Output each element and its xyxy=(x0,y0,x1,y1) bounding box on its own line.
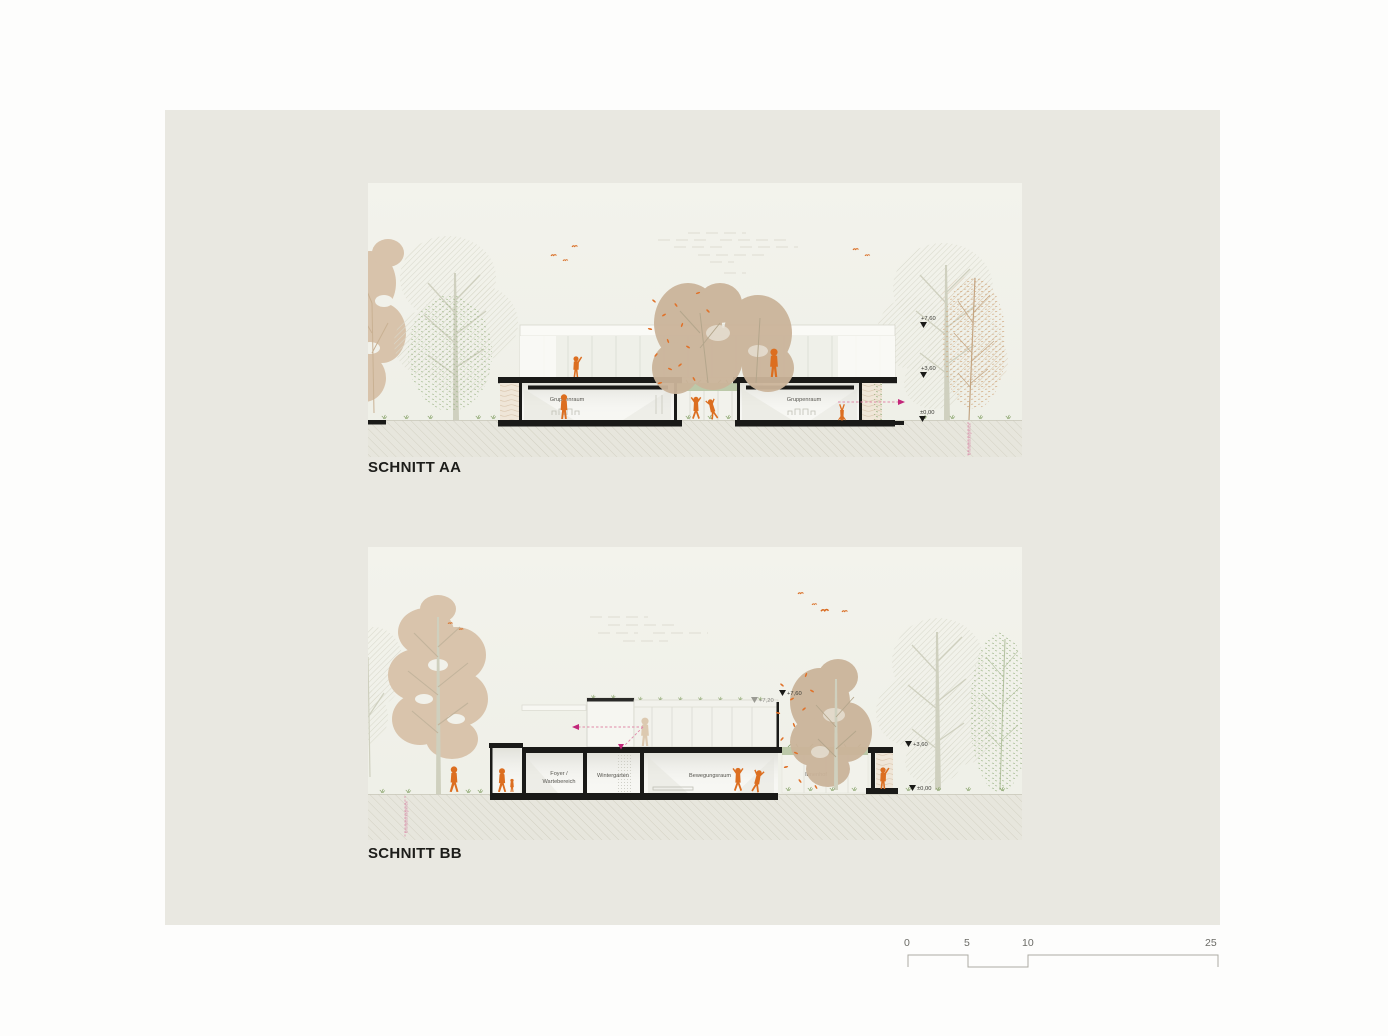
property-line-aa: Grundstücksgrenze xyxy=(968,422,972,456)
svg-text:+7,60: +7,60 xyxy=(921,316,936,322)
building-aa-left-wing: Gruppenraum xyxy=(498,377,682,420)
room-label-foyer-line2: Wartebereich xyxy=(542,779,575,785)
svg-text:±0,00: ±0,00 xyxy=(917,786,931,792)
room-label-foyer-line1: Foyer / xyxy=(550,771,568,777)
ground-aa xyxy=(368,415,1022,457)
section-bb-drawing: Foyer / Wartebereich Wintergarten Bewegu… xyxy=(368,547,1022,840)
svg-text:+3,60: +3,60 xyxy=(921,366,936,372)
scale-label-5: 5 xyxy=(964,937,970,949)
scale-label-10: 10 xyxy=(1022,937,1034,949)
room-label-gruppenraum-left: Gruppenraum xyxy=(550,397,585,403)
svg-text:+7,20: +7,20 xyxy=(759,698,774,704)
svg-text:+7,60: +7,60 xyxy=(787,691,802,697)
floor-slab-right xyxy=(735,420,895,427)
stair-tower xyxy=(587,698,634,747)
svg-text:Grundstücksgrenze: Grundstücksgrenze xyxy=(968,423,972,455)
svg-text:+3,60: +3,60 xyxy=(913,742,928,748)
tree-aa-centre xyxy=(648,283,794,394)
court-glazing-aa xyxy=(680,391,736,420)
section-bb-title: SCHNITT BB xyxy=(368,845,462,862)
scale-bar-line xyxy=(908,955,1218,967)
annex-left xyxy=(489,743,523,793)
floor-slab-main xyxy=(490,793,778,800)
scale-bar: 0 5 10 25 xyxy=(895,926,1230,974)
room-label-gruppenraum-right: Gruppenraum xyxy=(787,397,822,403)
section-aa-drawing: Gruppenraum Gruppenraum xyxy=(368,183,1022,457)
ground-bb xyxy=(368,787,1022,840)
svg-text:±0,00: ±0,00 xyxy=(920,410,934,416)
room-label-wintergarten: Wintergarten xyxy=(597,773,629,779)
scale-label-25: 25 xyxy=(1205,937,1217,949)
property-line-bb: Grundstücksgrenze xyxy=(405,796,409,838)
upper-floor xyxy=(634,700,779,747)
section-aa-title: SCHNITT AA xyxy=(368,459,461,476)
floor-slab-left xyxy=(498,420,682,427)
scale-label-0: 0 xyxy=(904,937,910,949)
floor-slab-mid xyxy=(522,747,782,753)
climbing-plants xyxy=(874,383,882,420)
room-label-bewegungsraum: Bewegungsraum xyxy=(689,773,731,779)
tree-aa-left-green-speckle xyxy=(408,295,492,411)
sheet: Gruppenraum Gruppenraum xyxy=(0,0,1388,1036)
svg-text:Grundstücksgrenze: Grundstücksgrenze xyxy=(405,801,409,833)
terrace-parapet xyxy=(522,705,586,711)
